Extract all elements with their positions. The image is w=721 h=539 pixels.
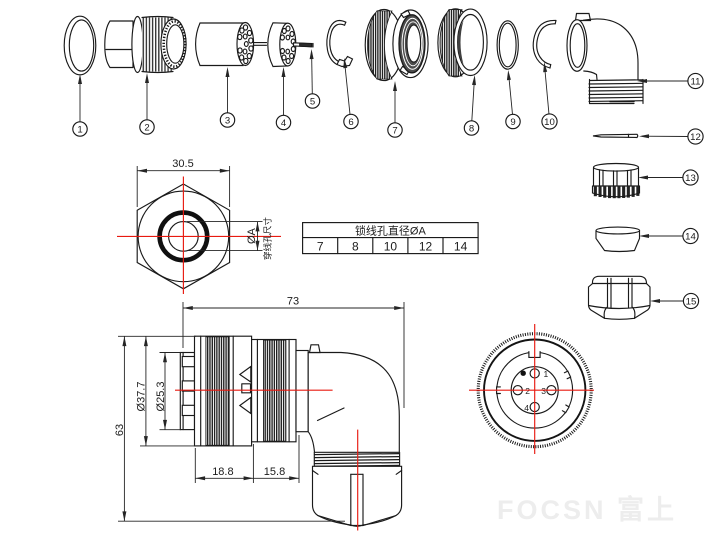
svg-text:4: 4 <box>281 118 287 129</box>
svg-text:73: 73 <box>287 296 299 308</box>
svg-text:63: 63 <box>114 424 126 436</box>
svg-text:12: 12 <box>419 239 433 253</box>
svg-text:FOCSN 富上: FOCSN 富上 <box>497 494 677 525</box>
svg-text:2: 2 <box>144 123 149 134</box>
svg-text:2: 2 <box>525 386 530 396</box>
svg-text:12: 12 <box>690 132 701 143</box>
svg-text:锁线孔直径ØA: 锁线孔直径ØA <box>355 223 427 237</box>
svg-text:3: 3 <box>541 386 546 396</box>
svg-text:Ø25.3: Ø25.3 <box>155 382 167 412</box>
svg-text:18.8: 18.8 <box>212 466 233 478</box>
svg-text:14: 14 <box>685 232 696 243</box>
svg-text:Ø37.7: Ø37.7 <box>136 382 148 412</box>
svg-text:15: 15 <box>686 297 697 308</box>
svg-text:7: 7 <box>317 239 324 253</box>
svg-text:8: 8 <box>469 124 474 135</box>
svg-text:穿线孔尺寸: 穿线孔尺寸 <box>262 217 273 260</box>
svg-text:4: 4 <box>524 403 529 413</box>
svg-text:10: 10 <box>544 117 555 128</box>
svg-text:10: 10 <box>384 239 398 253</box>
svg-text:9: 9 <box>510 117 515 128</box>
svg-text:14: 14 <box>454 239 468 253</box>
svg-text:8: 8 <box>352 239 359 253</box>
svg-text:11: 11 <box>691 77 701 88</box>
svg-text:3: 3 <box>225 116 230 127</box>
svg-text:5: 5 <box>310 97 315 108</box>
svg-text:30.5: 30.5 <box>172 158 193 170</box>
svg-text:13: 13 <box>685 173 696 184</box>
svg-text:1: 1 <box>544 369 549 379</box>
svg-text:7: 7 <box>392 126 397 137</box>
svg-text:ØA: ØA <box>246 227 258 244</box>
svg-text:6: 6 <box>348 117 353 128</box>
svg-text:15.8: 15.8 <box>264 466 285 478</box>
svg-text:1: 1 <box>77 125 82 136</box>
